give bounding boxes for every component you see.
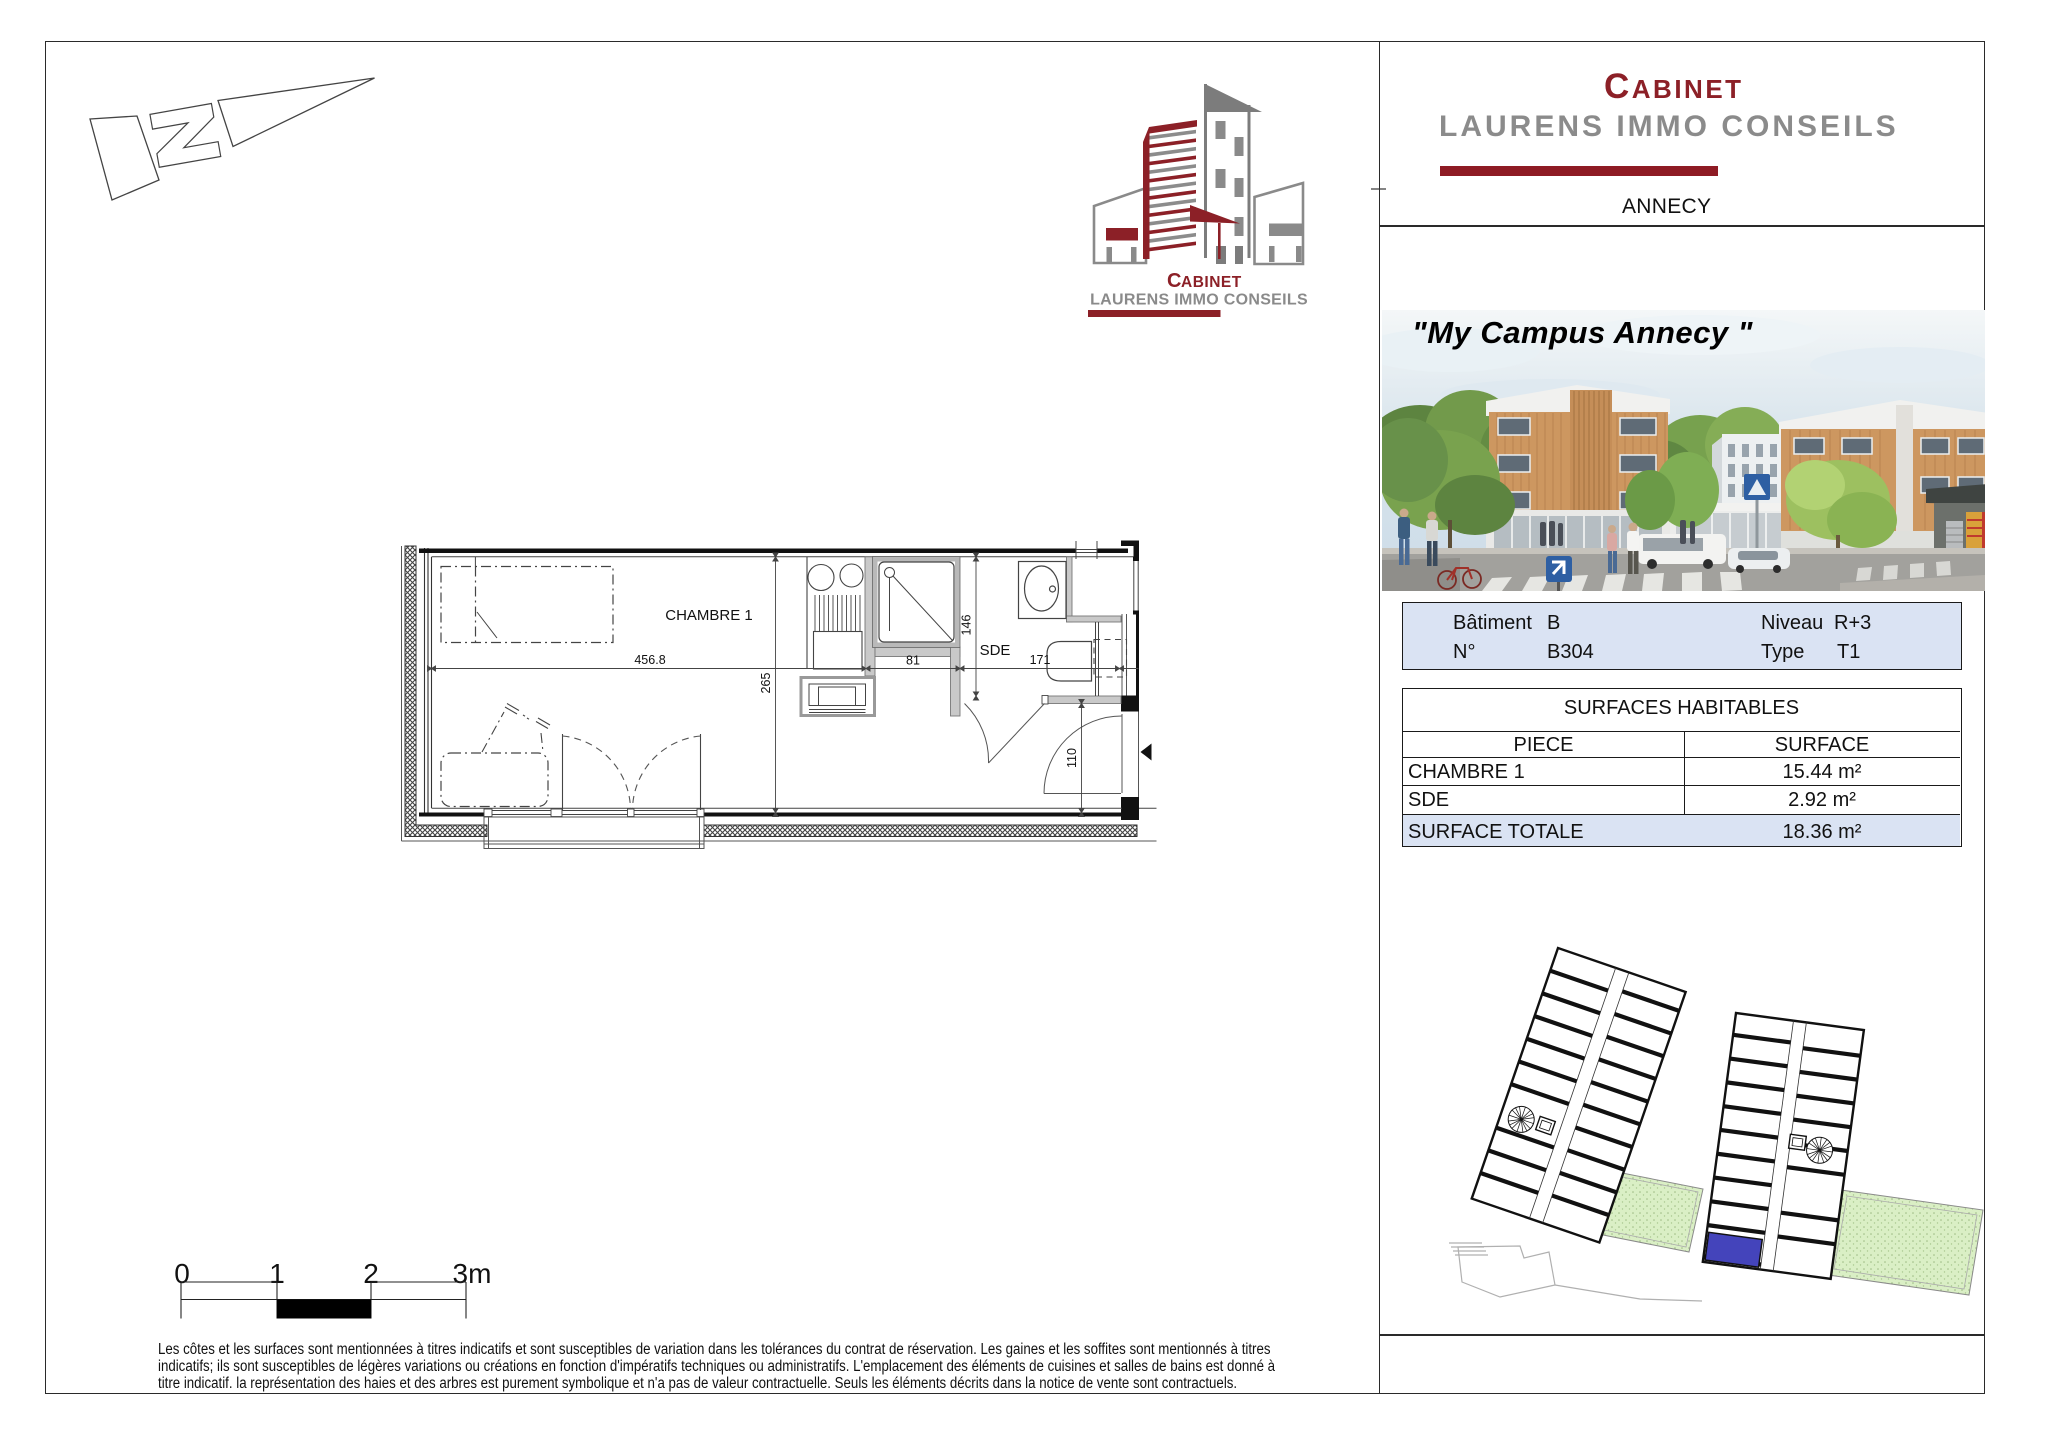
svg-text:265: 265 bbox=[759, 673, 773, 694]
svg-text:CHAMBRE 1: CHAMBRE 1 bbox=[665, 607, 753, 624]
svg-text:SDE: SDE bbox=[980, 642, 1011, 659]
svg-text:110: 110 bbox=[1065, 748, 1079, 768]
svg-text:81: 81 bbox=[906, 654, 920, 668]
svg-text:LAURENS IMMO CONSEILS: LAURENS IMMO CONSEILS bbox=[1090, 292, 1308, 309]
svg-text:171: 171 bbox=[1030, 653, 1051, 667]
svg-text:146: 146 bbox=[960, 615, 974, 636]
svg-text:456.8: 456.8 bbox=[634, 653, 665, 667]
svg-text:ABINET: ABINET bbox=[1181, 274, 1242, 291]
svg-text:C: C bbox=[1167, 270, 1181, 292]
